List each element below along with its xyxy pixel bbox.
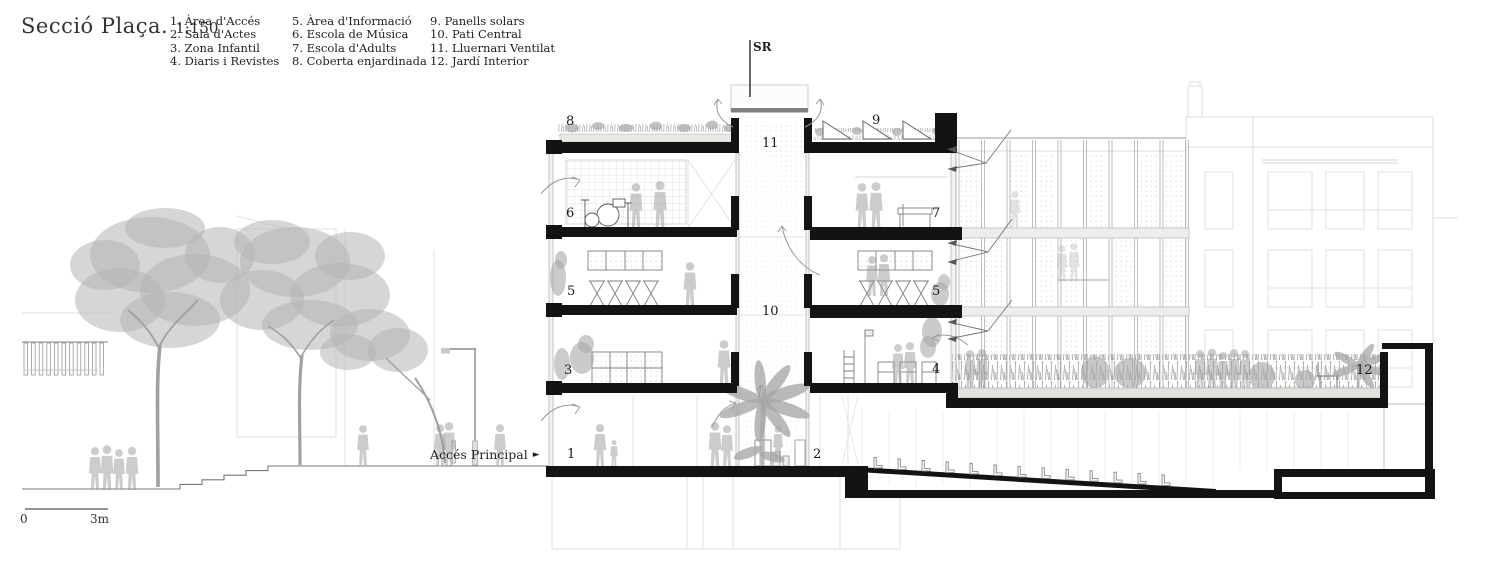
marker-sr: SR	[753, 40, 772, 54]
marker-8: 8	[566, 114, 574, 129]
legend-item-7: 7. Escola d'Adults	[292, 42, 427, 55]
green-roof-left	[558, 121, 735, 143]
legend-item-9: 9. Panells solars	[430, 15, 555, 28]
section-drawing	[0, 0, 1500, 571]
marker-5-left: 5	[567, 284, 575, 299]
marker-11: 11	[762, 136, 779, 151]
legend-item-8: 8. Coberta enjardinada	[292, 55, 427, 68]
legend-item-1: 1. Àrea d'Accés	[170, 15, 279, 28]
marker-2: 2	[813, 447, 821, 462]
legend-item-4: 4. Diaris i Revistes	[170, 55, 279, 68]
scale-bar-start: 0	[20, 512, 28, 526]
drawing-title: Secció Plaça.	[21, 14, 168, 38]
access-arrow-icon: ►	[533, 450, 540, 460]
marker-3: 3	[564, 363, 572, 378]
marker-10: 10	[762, 304, 779, 319]
legend-item-11: 11. Lluernari Ventilat	[430, 42, 555, 55]
right-end-lines	[1384, 404, 1425, 469]
marker-12: 12	[1356, 363, 1373, 378]
legend-item-3: 3. Zona Infantil	[170, 42, 279, 55]
legend-item-6: 6. Escola de Música	[292, 28, 427, 41]
marker-5-right: 5	[932, 284, 940, 299]
scale-bar-end: 3m	[90, 512, 109, 526]
marker-9: 9	[872, 113, 880, 128]
legend-item-12: 12. Jardí Interior	[430, 55, 555, 68]
legend-item-10: 10. Pati Central	[430, 28, 555, 41]
cut-box-inner	[1282, 477, 1425, 492]
marker-1: 1	[567, 447, 575, 462]
access-annotation: Accés Principal ►	[430, 447, 540, 462]
legend-item-2: 2. Sala d'Actes	[170, 28, 279, 41]
pergola	[22, 342, 108, 375]
legend-item-5: 5. Àrea d'Informació	[292, 15, 427, 28]
trees	[70, 208, 445, 487]
architectural-section-sheet: Secció Plaça. 1:150 1. Àrea d'Accés 2. S…	[0, 0, 1500, 571]
marker-4: 4	[932, 362, 940, 377]
legend-column-2: 5. Àrea d'Informació 6. Escola de Música…	[292, 15, 427, 69]
legend-column-1: 1. Àrea d'Accés 2. Sala d'Actes 3. Zona …	[170, 15, 279, 69]
legend-column-3: 9. Panells solars 10. Pati Central 11. L…	[430, 15, 555, 69]
access-label: Accés Principal	[430, 447, 528, 462]
marker-7: 7	[932, 206, 940, 221]
marker-6: 6	[566, 206, 574, 221]
